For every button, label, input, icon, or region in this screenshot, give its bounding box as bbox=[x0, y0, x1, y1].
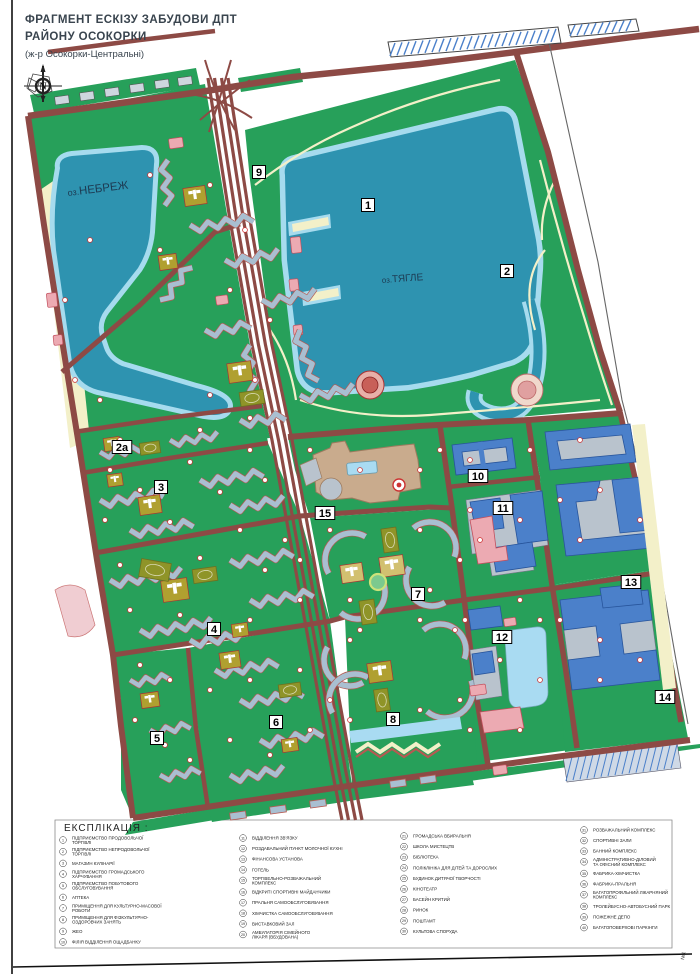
svg-text:12: 12 bbox=[241, 847, 245, 851]
svg-text:4: 4 bbox=[62, 872, 64, 876]
svg-text:ГОТЕЛЬ: ГОТЕЛЬ bbox=[252, 867, 269, 872]
svg-text:ТРОЛЕЙБУСНО-АВТОБУСНИЙ ПАРК: ТРОЛЕЙБУСНО-АВТОБУСНИЙ ПАРК bbox=[593, 904, 671, 909]
svg-text:БАГАТОПОВЕРХОВІ ПАРКІНГИ: БАГАТОПОВЕРХОВІ ПАРКІНГИ bbox=[593, 925, 658, 930]
svg-text:35: 35 bbox=[582, 872, 586, 876]
svg-text:ШКОЛА МИСТЕЦТВ: ШКОЛА МИСТЕЦТВ bbox=[413, 844, 454, 849]
svg-text:27: 27 bbox=[402, 898, 406, 902]
svg-text:2: 2 bbox=[504, 266, 510, 278]
svg-text:16: 16 bbox=[241, 890, 245, 894]
svg-text:(ж-р Осокорки-Центральні): (ж-р Осокорки-Центральні) bbox=[25, 49, 144, 60]
svg-text:5: 5 bbox=[154, 733, 160, 745]
svg-text:КОМПЛЕКС: КОМПЛЕКС bbox=[593, 895, 617, 900]
svg-text:36: 36 bbox=[582, 882, 586, 886]
svg-text:34: 34 bbox=[582, 860, 586, 864]
svg-text:20: 20 bbox=[241, 933, 245, 937]
svg-text:ХАРЧУВАННЯ: ХАРЧУВАННЯ bbox=[72, 874, 102, 879]
svg-text:22: 22 bbox=[402, 845, 406, 849]
svg-text:9: 9 bbox=[256, 167, 262, 179]
svg-text:39: 39 bbox=[582, 915, 586, 919]
svg-text:21: 21 bbox=[402, 834, 406, 838]
svg-text:7: 7 bbox=[415, 589, 421, 601]
svg-text:15: 15 bbox=[241, 879, 245, 883]
svg-text:ЕКСПЛІКАЦІЯ :: ЕКСПЛІКАЦІЯ : bbox=[64, 823, 149, 834]
svg-text:КУЛЬТОВА СПОРУДА: КУЛЬТОВА СПОРУДА bbox=[413, 929, 458, 934]
svg-text:СПОРТИВНІ ЗАЛИ: СПОРТИВНІ ЗАЛИ bbox=[593, 838, 632, 843]
svg-text:3: 3 bbox=[158, 482, 164, 494]
svg-text:ПОШТАМТ: ПОШТАМТ bbox=[413, 918, 436, 923]
svg-text:РОЗВАЖАЛЬНИЙ КОМПЛЕКС: РОЗВАЖАЛЬНИЙ КОМПЛЕКС bbox=[593, 828, 655, 833]
svg-text:ЛІКАРЯ (ВБУДОВАНА): ЛІКАРЯ (ВБУДОВАНА) bbox=[252, 935, 299, 940]
svg-text:28: 28 bbox=[402, 909, 406, 913]
svg-text:ОБСЛУГОВУВАННЯ: ОБСЛУГОВУВАННЯ bbox=[72, 886, 113, 891]
svg-text:РАЙОНУ ОСОКОРКИ: РАЙОНУ ОСОКОРКИ bbox=[25, 30, 147, 43]
svg-text:1: 1 bbox=[62, 838, 64, 842]
svg-text:3: 3 bbox=[62, 862, 64, 866]
svg-text:ОЗДОРОВЧИХ ЗАНЯТЬ: ОЗДОРОВЧИХ ЗАНЯТЬ bbox=[72, 920, 121, 925]
svg-text:ФАБРИКА-ХІМЧИСТКА: ФАБРИКА-ХІМЧИСТКА bbox=[593, 871, 640, 876]
svg-text:6: 6 bbox=[273, 717, 279, 729]
svg-text:17: 17 bbox=[241, 901, 245, 905]
svg-text:13: 13 bbox=[625, 577, 637, 589]
svg-text:ХІМЧИСТКА САМООБСЛУГОВУВАННЯ: ХІМЧИСТКА САМООБСЛУГОВУВАННЯ bbox=[252, 911, 333, 916]
svg-text:ПРАЛЬНЯ САМООБСЛУГОВУВАННЯ: ПРАЛЬНЯ САМООБСЛУГОВУВАННЯ bbox=[252, 900, 329, 905]
svg-text:РИНОК: РИНОК bbox=[413, 908, 429, 913]
svg-text:29: 29 bbox=[402, 919, 406, 923]
svg-text:15: 15 bbox=[319, 508, 331, 520]
svg-text:МАГАЗИН КУЛІНАРІЇ: МАГАЗИН КУЛІНАРІЇ bbox=[72, 861, 115, 866]
svg-text:ВІДКРИТІ СПОРТИВНІ МАЙДАНЧИКИ: ВІДКРИТІ СПОРТИВНІ МАЙДАНЧИКИ bbox=[252, 890, 330, 895]
svg-text:ПОЖЕЖНЕ ДЕПО: ПОЖЕЖНЕ ДЕПО bbox=[593, 915, 631, 920]
svg-text:2a: 2a bbox=[116, 442, 129, 454]
svg-text:N: N bbox=[39, 82, 47, 93]
svg-text:6: 6 bbox=[62, 896, 64, 900]
svg-text:РОЗДАВАЛЬНИЙ ПУНКТ МОЛОЧНОЇ КУ: РОЗДАВАЛЬНИЙ ПУНКТ МОЛОЧНОЇ КУХНІ bbox=[252, 846, 343, 851]
svg-text:БАННИЙ КОМПЛЕКС: БАННИЙ КОМПЛЕКС bbox=[593, 849, 637, 854]
svg-text:ПОЛІКЛІНІКА ДЛЯ ДІТЕЙ ТА ДОРОС: ПОЛІКЛІНІКА ДЛЯ ДІТЕЙ ТА ДОРОСЛИХ bbox=[413, 865, 497, 870]
svg-text:19: 19 bbox=[241, 922, 245, 926]
svg-text:33: 33 bbox=[582, 850, 586, 854]
svg-text:40: 40 bbox=[582, 926, 586, 930]
svg-text:18: 18 bbox=[241, 912, 245, 916]
svg-text:11: 11 bbox=[241, 836, 245, 840]
svg-text:32: 32 bbox=[582, 839, 586, 843]
svg-text:2: 2 bbox=[62, 850, 64, 854]
svg-text:5: 5 bbox=[62, 884, 64, 888]
svg-text:38: 38 bbox=[582, 905, 586, 909]
svg-text:8: 8 bbox=[62, 918, 64, 922]
svg-text:КІНОТЕАТР: КІНОТЕАТР bbox=[413, 887, 437, 892]
svg-text:25: 25 bbox=[402, 877, 406, 881]
svg-text:КОМПЛЕКС: КОМПЛЕКС bbox=[252, 880, 276, 885]
svg-text:23: 23 bbox=[402, 856, 406, 860]
svg-text:ГРОМАДСЬКА ВБИРАЛЬНЯ: ГРОМАДСЬКА ВБИРАЛЬНЯ bbox=[413, 834, 471, 839]
svg-text:ВИСТАВКОВИЙ ЗАЛ: ВИСТАВКОВИЙ ЗАЛ bbox=[252, 921, 295, 926]
svg-text:РОБОТИ: РОБОТИ bbox=[72, 908, 90, 913]
svg-text:14: 14 bbox=[241, 868, 245, 872]
svg-text:11: 11 bbox=[497, 503, 509, 515]
svg-text:ФРАГМЕНТ ЕСКІЗУ ЗАБУДОВИ ДПТ: ФРАГМЕНТ ЕСКІЗУ ЗАБУДОВИ ДПТ bbox=[25, 14, 237, 26]
svg-text:31: 31 bbox=[582, 828, 586, 832]
svg-text:9: 9 bbox=[62, 930, 64, 934]
svg-text:24: 24 bbox=[402, 866, 406, 870]
svg-text:ФАБРИКА-ПРАЛЬНЯ: ФАБРИКА-ПРАЛЬНЯ bbox=[593, 882, 636, 887]
svg-text:26: 26 bbox=[402, 887, 406, 891]
svg-text:10: 10 bbox=[61, 940, 65, 944]
svg-text:БУДИНОК ДИТЯЧОЇ ТВОРЧОСТІ: БУДИНОК ДИТЯЧОЇ ТВОРЧОСТІ bbox=[413, 876, 481, 881]
svg-text:БІБЛІОТЕКА: БІБЛІОТЕКА bbox=[413, 855, 439, 860]
svg-text:30: 30 bbox=[402, 930, 406, 934]
svg-text:12: 12 bbox=[496, 632, 508, 644]
svg-text:1: 1 bbox=[365, 200, 371, 212]
svg-text:8: 8 bbox=[390, 714, 396, 726]
svg-text:ФІЛІЯ ВІДДІЛЕННЯ ОЩАДБАНКУ: ФІЛІЯ ВІДДІЛЕННЯ ОЩАДБАНКУ bbox=[72, 940, 141, 945]
svg-text:14: 14 bbox=[659, 692, 672, 704]
svg-text:ТОРГІВЛІ: ТОРГІВЛІ bbox=[72, 840, 91, 845]
svg-text:10: 10 bbox=[472, 471, 484, 483]
svg-text:ТА ОФІСНИЙ КОМПЛЕКС: ТА ОФІСНИЙ КОМПЛЕКС bbox=[593, 862, 646, 867]
svg-text:ТОРГІВЛІ: ТОРГІВЛІ bbox=[72, 852, 91, 857]
svg-text:13: 13 bbox=[241, 858, 245, 862]
svg-text:4: 4 bbox=[211, 624, 218, 636]
svg-text:ФІНАНСОВА УСТАНОВА: ФІНАНСОВА УСТАНОВА bbox=[252, 857, 303, 862]
svg-text:АПТЕКА: АПТЕКА bbox=[72, 895, 89, 900]
svg-text:37: 37 bbox=[582, 893, 586, 897]
svg-text:ЖЕО: ЖЕО bbox=[72, 929, 83, 934]
svg-text:7: 7 bbox=[62, 906, 64, 910]
svg-text:БАСЕЙН КРИТИЙ: БАСЕЙН КРИТИЙ bbox=[413, 897, 450, 902]
svg-text:ВІДДІЛЕННЯ ЗВ'ЯЗКУ: ВІДДІЛЕННЯ ЗВ'ЯЗКУ bbox=[252, 836, 298, 841]
